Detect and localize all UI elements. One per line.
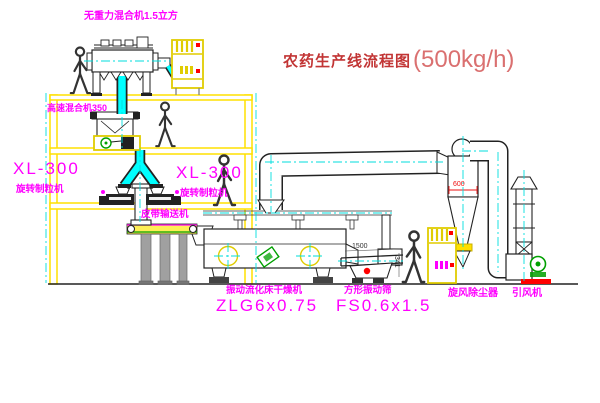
label-granulator-right-name: 旋转制粒机	[180, 189, 228, 199]
belt-conveyor	[127, 224, 197, 284]
label-dryer-model: ZLG6x0.75	[216, 297, 318, 314]
indicator-light	[450, 263, 454, 267]
indicator-light	[449, 231, 453, 235]
label-gravity-mixer: 无重力混合机1.5立方	[84, 12, 178, 22]
label-cyclone: 旋风除尘器	[448, 289, 498, 299]
screen-motor	[364, 268, 370, 274]
title-text: 农药生产线流程图	[283, 50, 411, 71]
indicator-light	[196, 43, 200, 47]
exhaust-duct	[258, 152, 450, 213]
label-fan: 引风机	[512, 289, 542, 299]
flow-diagram: 农药生产线流程图 (500kg/h) 无重力混合机1.5立方 高速混合机350 …	[0, 0, 600, 403]
conveyor-legs	[139, 234, 189, 284]
label-granulator-right-model: XL-300	[176, 164, 243, 181]
label-belt-conveyor: 皮带输送机	[141, 210, 189, 220]
high-speed-mixer	[90, 112, 140, 150]
label-granulator-left-name: 旋转制粒机	[16, 185, 64, 195]
granulator-right	[146, 187, 181, 205]
granulator-left	[99, 187, 134, 205]
y-pipe	[118, 150, 163, 188]
control-cabinet-top	[172, 40, 203, 95]
label-sieve-model: FS0.6x1.5	[336, 297, 432, 314]
dim-sieve-1500: 1500	[352, 243, 368, 250]
label-dryer-name: 振动流化床干燥机	[226, 286, 302, 296]
dryer-top-duct	[203, 211, 392, 229]
indicator-light	[196, 69, 200, 73]
dim-sieve-341: 341	[393, 256, 400, 268]
fan-base	[521, 279, 551, 284]
dim-cyclone-600: 600	[453, 181, 465, 188]
induced-draft-fan	[506, 254, 551, 284]
label-granulator-left-model: XL-300	[13, 160, 80, 177]
diagram-title: 农药生产线流程图 (500kg/h)	[283, 46, 514, 74]
fluid-bed-dryer	[189, 226, 358, 283]
person-second-floor	[156, 103, 174, 147]
gravity-mixer	[87, 37, 176, 96]
label-sieve-name: 方形振动筛	[344, 286, 392, 296]
person-ground	[403, 231, 424, 281]
control-cabinet-ground	[428, 228, 456, 283]
label-high-speed-mixer: 高速混合机350	[47, 104, 107, 113]
title-capacity: (500kg/h)	[413, 46, 514, 74]
